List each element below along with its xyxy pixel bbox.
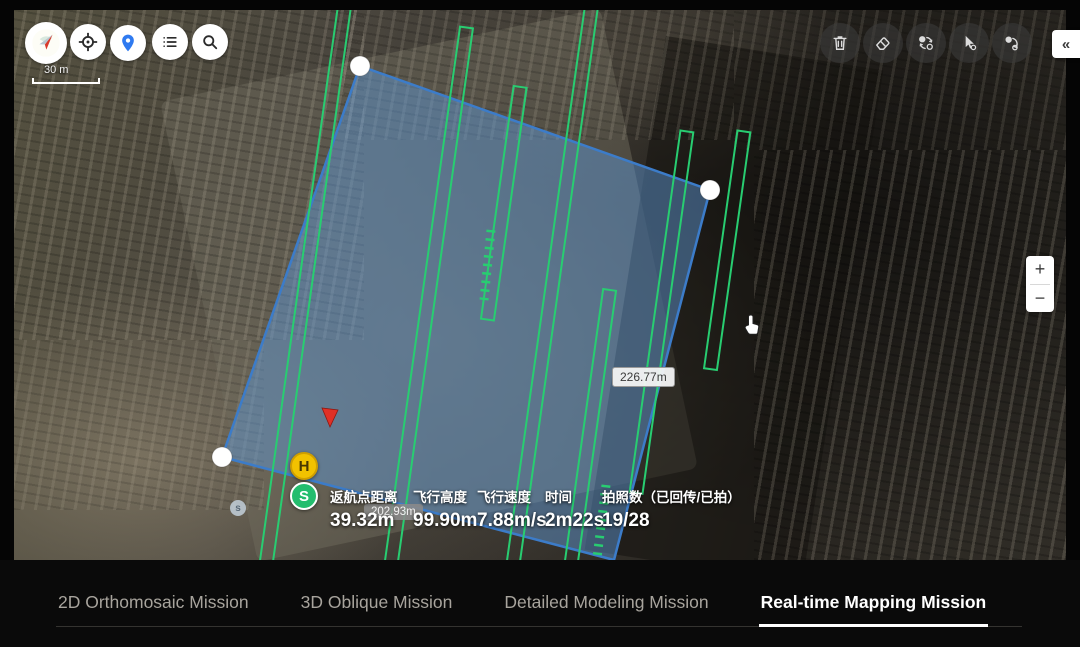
mission-list-button[interactable]	[152, 24, 188, 60]
stat-label: 返航点距离	[330, 486, 398, 506]
swap-waypoints-button[interactable]	[906, 23, 946, 63]
my-location-icon	[77, 31, 99, 53]
telemetry-bar: 返航点距离 39.32m 飞行高度 99.90m 飞行速度 7.88m/s 时间…	[330, 486, 750, 536]
stat-label: 飞行高度	[413, 486, 477, 506]
stat-label: 拍照数（已回传/已拍）	[602, 486, 741, 506]
zoom-out-button[interactable]: −	[1026, 285, 1054, 313]
swap-points-icon	[916, 33, 936, 53]
app-window: H S s 226.77m 202.93m 返航点距离 39.32m 飞行高度 …	[0, 0, 1080, 647]
place-marker-button[interactable]	[110, 25, 146, 61]
home-point-marker: H	[290, 452, 318, 480]
mission-type-tabbar: 2D Orthomosaic Mission 3D Oblique Missio…	[0, 560, 1080, 647]
vertex-handle[interactable]	[212, 447, 232, 467]
map-pin-icon	[118, 33, 138, 53]
my-location-button[interactable]	[70, 24, 106, 60]
stat-photos: 拍照数（已回传/已拍） 19/28	[602, 486, 741, 532]
stat-value: 19/28	[602, 510, 741, 532]
tab-detailed-modeling[interactable]: Detailed Modeling Mission	[504, 592, 708, 627]
stat-label: 飞行速度	[477, 486, 547, 506]
tabs-row: 2D Orthomosaic Mission 3D Oblique Missio…	[58, 592, 986, 627]
scale-line	[32, 78, 100, 84]
sub-start-point-marker: s	[230, 500, 246, 516]
zoom-control: + −	[1026, 256, 1054, 312]
compass-button[interactable]	[25, 22, 67, 64]
stat-altitude: 飞行高度 99.90m	[413, 486, 477, 532]
tab-3d-oblique[interactable]: 3D Oblique Mission	[301, 592, 453, 627]
stat-time: 时间 2m22s	[545, 486, 604, 532]
stat-value: 2m22s	[545, 510, 604, 532]
tab-realtime-mapping[interactable]: Real-time Mapping Mission	[761, 592, 987, 627]
list-icon	[160, 32, 180, 52]
stat-speed: 飞行速度 7.88m/s	[477, 486, 547, 532]
stat-value: 99.90m	[413, 510, 477, 532]
tab-2d-orthomosaic[interactable]: 2D Orthomosaic Mission	[58, 592, 249, 627]
revert-point-button[interactable]	[992, 23, 1032, 63]
stat-label: 时间	[545, 486, 604, 506]
flight-strip	[704, 131, 750, 370]
erase-area-button[interactable]	[863, 23, 903, 63]
map-viewport[interactable]: H S s 226.77m 202.93m 返航点距离 39.32m 飞行高度 …	[14, 10, 1066, 560]
start-point-marker: S	[290, 482, 318, 510]
map-scale-bar: 30 m	[32, 64, 100, 84]
zoom-in-button[interactable]: +	[1026, 256, 1054, 284]
search-icon	[200, 32, 220, 52]
select-point-button[interactable]	[949, 23, 989, 63]
stat-return-distance: 返航点距离 39.32m	[330, 486, 398, 532]
vertex-handle[interactable]	[700, 180, 720, 200]
revert-point-icon	[1002, 33, 1022, 53]
stat-value: 39.32m	[330, 510, 398, 532]
stat-value: 7.88m/s	[477, 510, 547, 532]
mission-overlay	[14, 10, 1066, 560]
vertex-handle[interactable]	[350, 56, 370, 76]
collapse-panel-button[interactable]: «	[1052, 30, 1080, 58]
eraser-icon	[873, 33, 893, 53]
compass-icon	[31, 28, 61, 58]
scale-label: 30 m	[32, 64, 100, 76]
edge-length-label: 226.77m	[612, 367, 675, 387]
search-button[interactable]	[192, 24, 228, 60]
delete-mission-button[interactable]	[820, 23, 860, 63]
trash-icon	[830, 33, 850, 53]
pointer-select-icon	[959, 33, 979, 53]
